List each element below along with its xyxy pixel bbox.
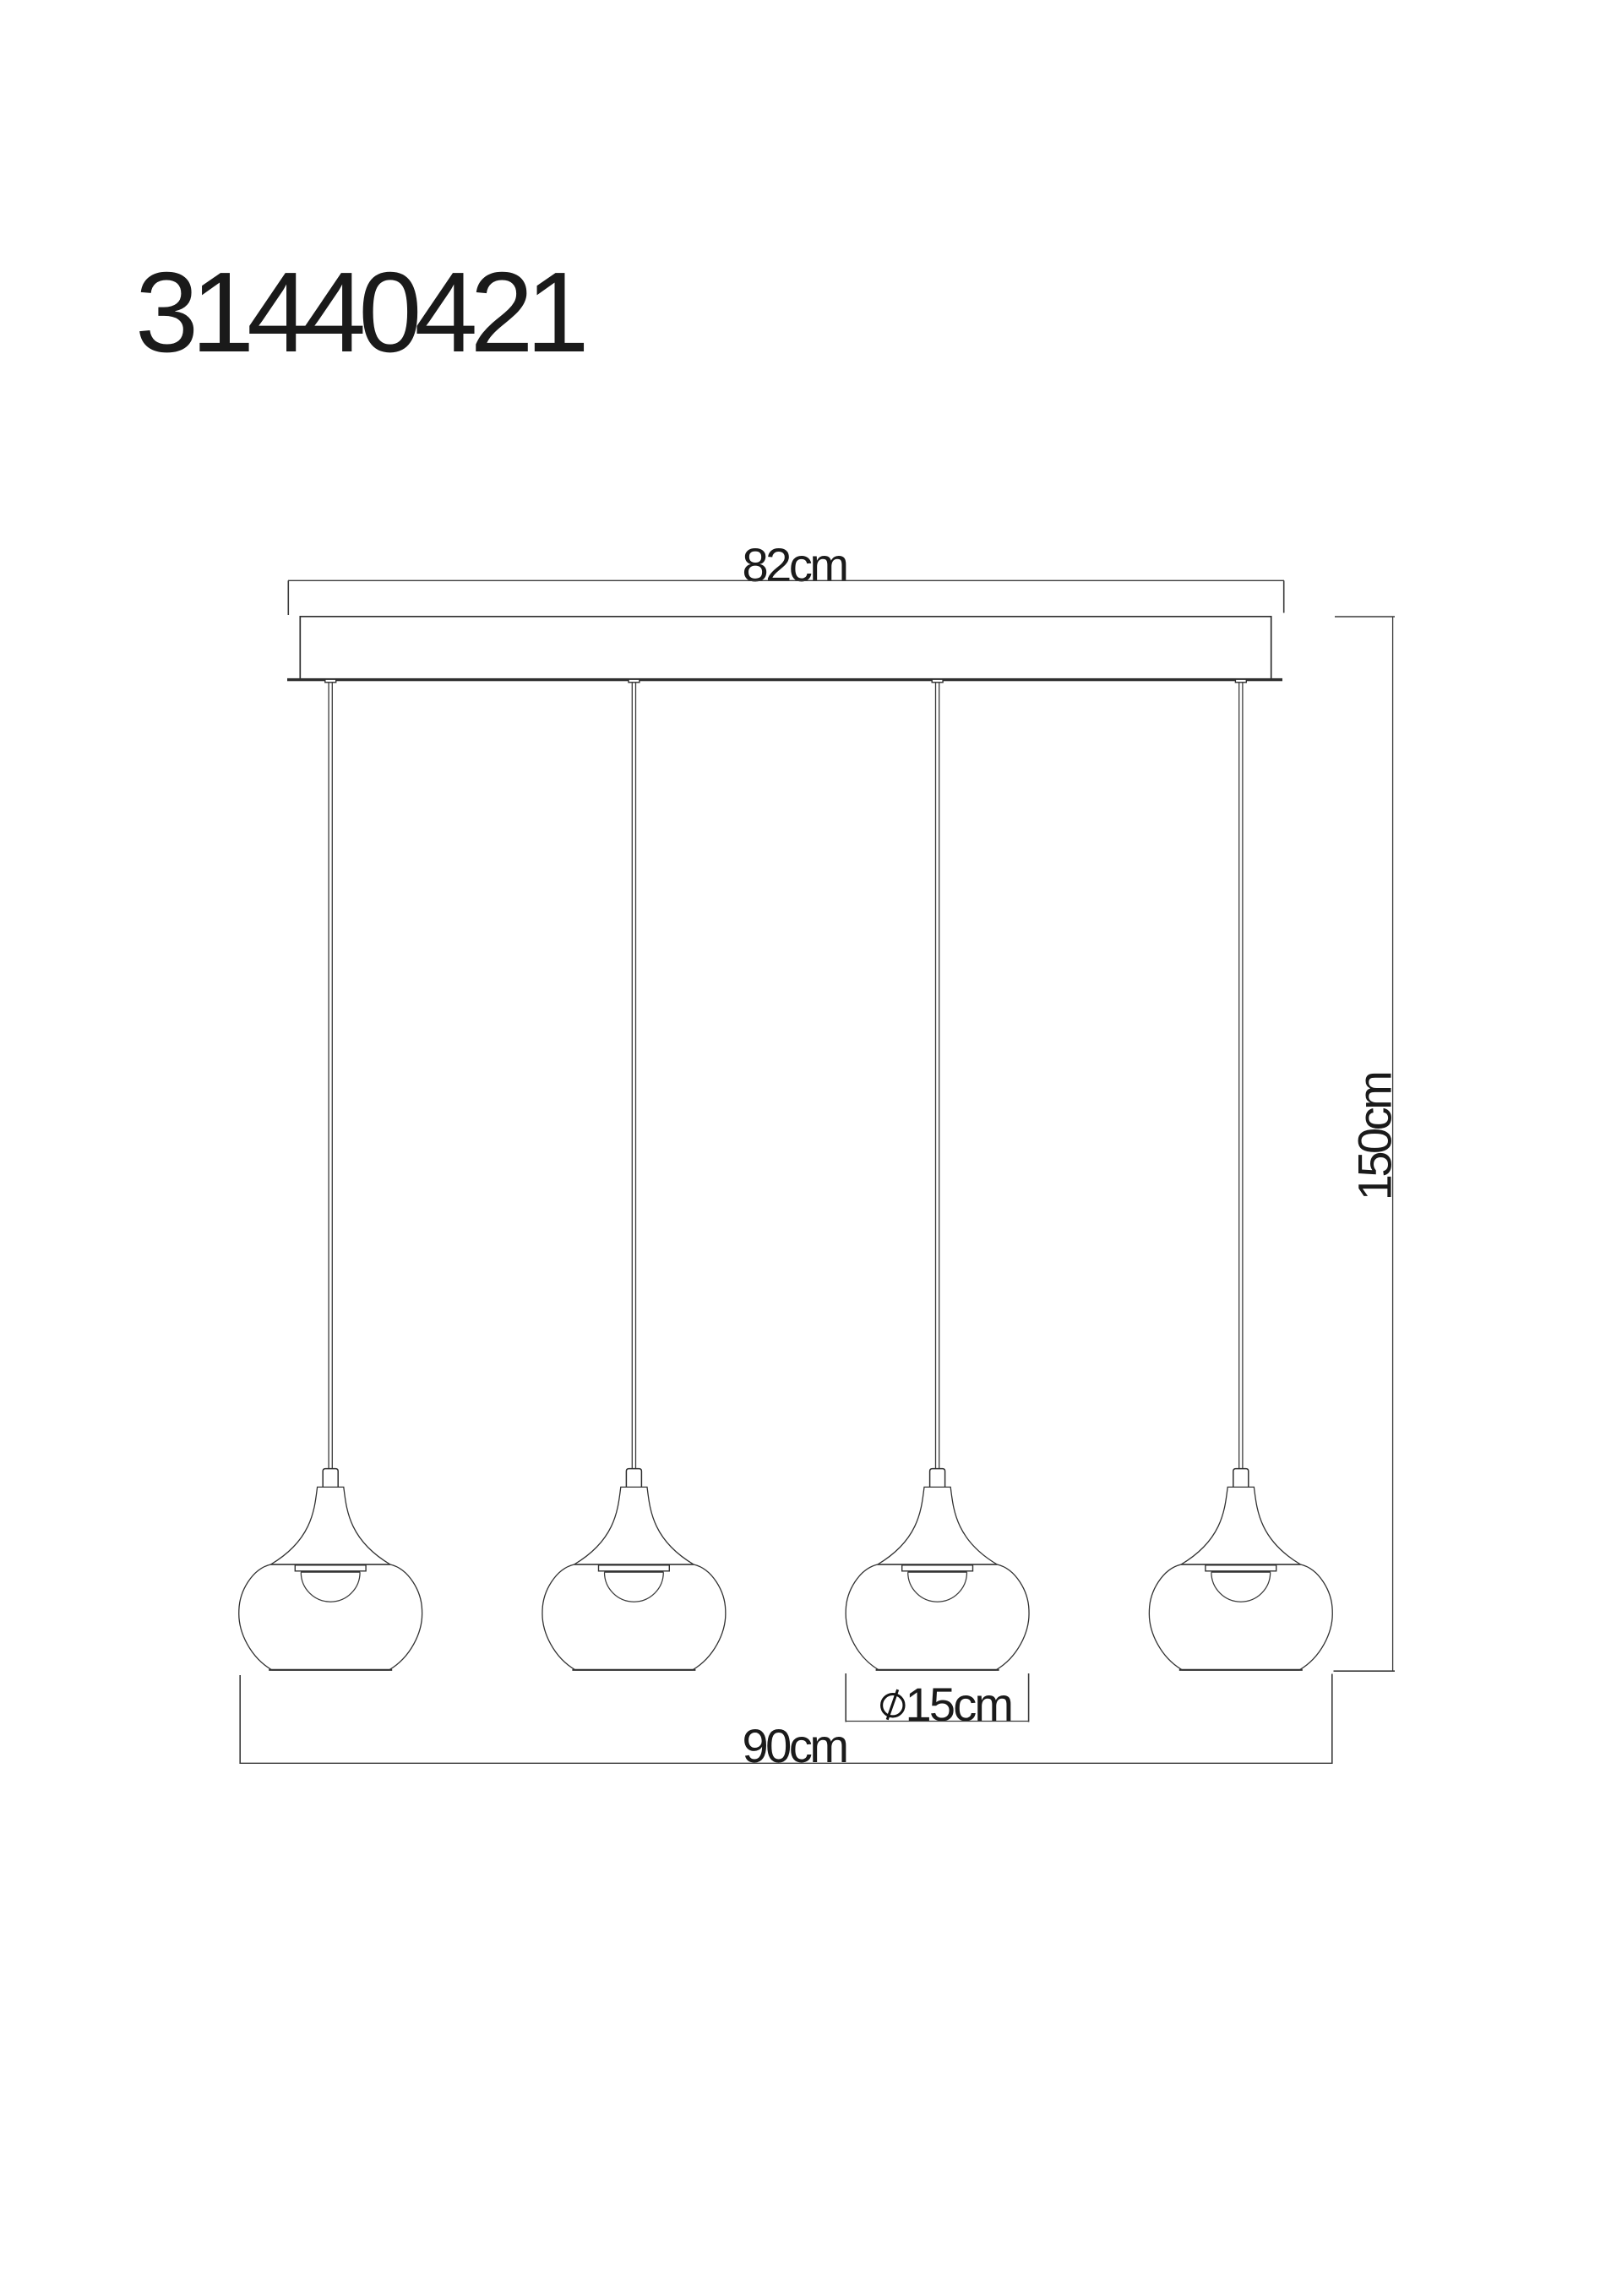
svg-text:90cm: 90cm: [743, 1719, 846, 1772]
svg-text:15cm: 15cm: [906, 1678, 1012, 1731]
svg-text:31440421: 31440421: [135, 248, 585, 376]
svg-text:82cm: 82cm: [743, 538, 846, 591]
